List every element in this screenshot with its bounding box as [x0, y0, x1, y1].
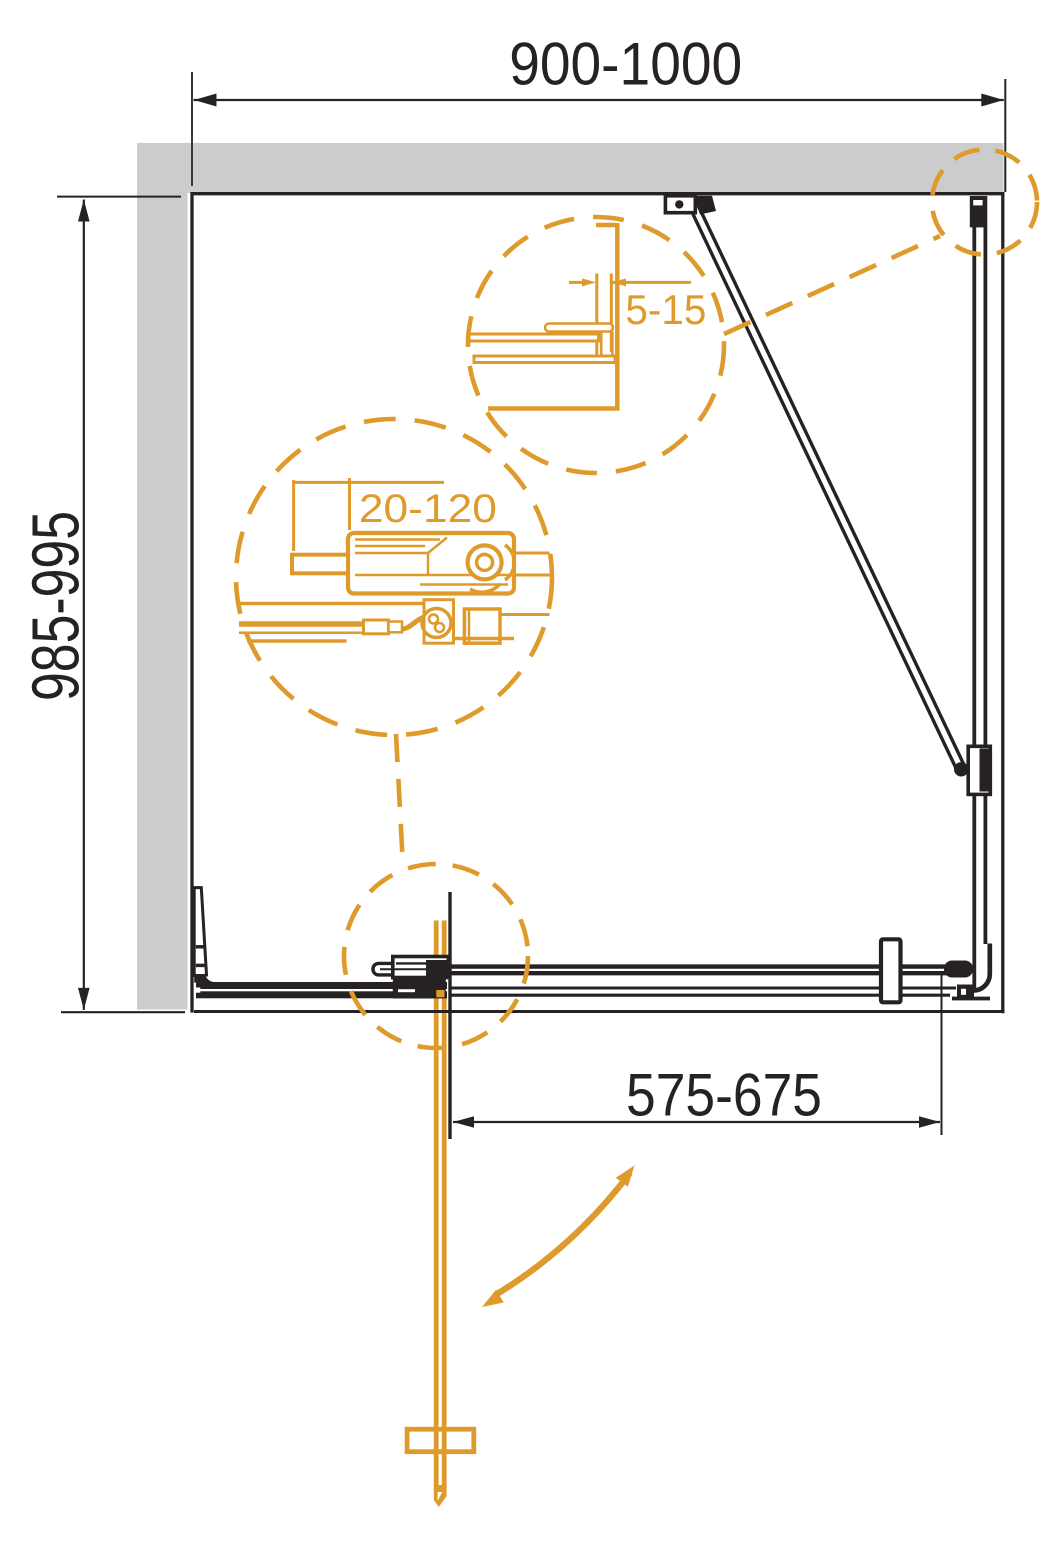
- svg-text:575-675: 575-675: [626, 1062, 822, 1129]
- svg-text:985-995: 985-995: [19, 511, 94, 701]
- svg-text:5-15: 5-15: [625, 286, 706, 333]
- svg-text:900-1000: 900-1000: [509, 31, 742, 98]
- svg-text:20-120: 20-120: [359, 487, 497, 531]
